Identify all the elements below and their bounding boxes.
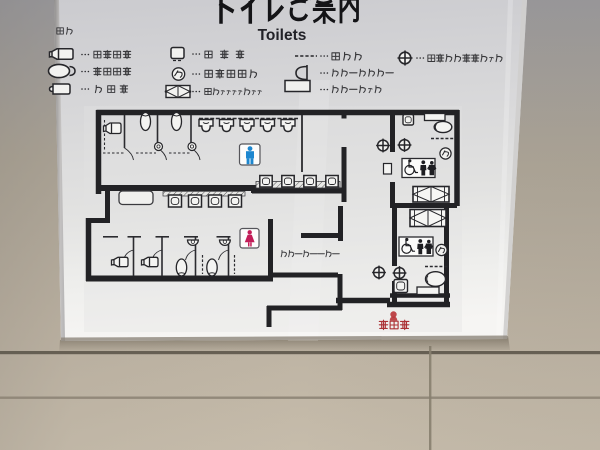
svg-text:Toilets: Toilets [258, 27, 307, 44]
